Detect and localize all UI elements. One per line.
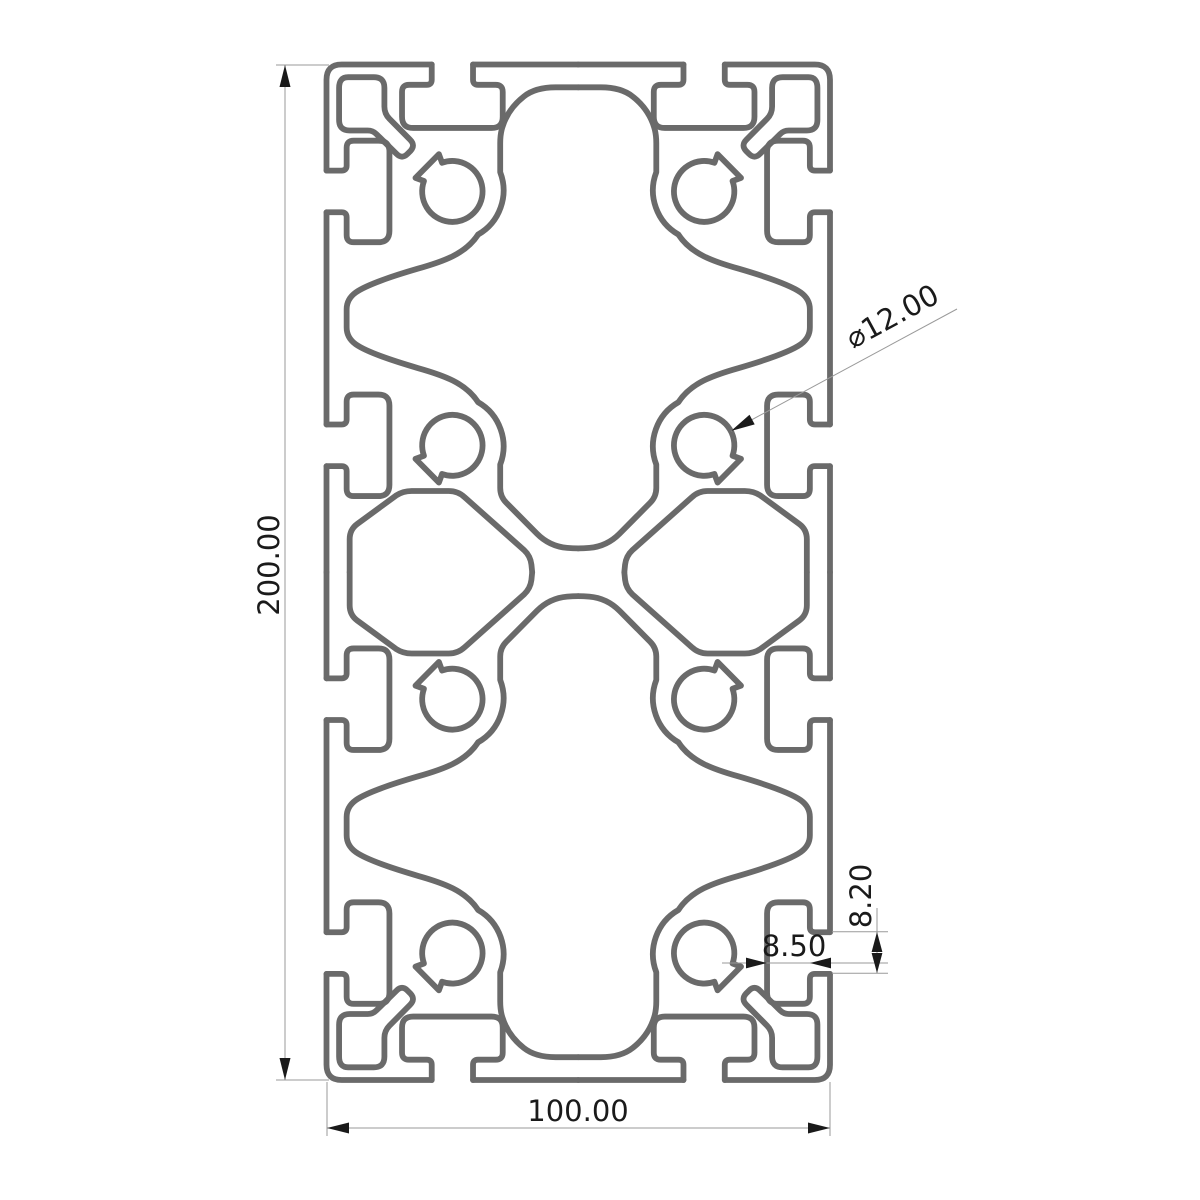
width-dimension-label: 100.00 xyxy=(527,1094,628,1128)
dimension-slot-depth: 8.50 xyxy=(722,929,888,968)
leader-arrowhead-icon xyxy=(731,415,755,431)
arrowhead-up-icon xyxy=(872,932,883,952)
dimension-slot-opening: 8.20 xyxy=(832,864,888,974)
technical-drawing: 200.00 100.00 ⌀12.00 8.50 8.20 xyxy=(0,0,1200,1200)
dimension-height: 200.00 xyxy=(252,65,329,1080)
arrowhead-left-icon xyxy=(327,1123,349,1134)
arrowhead-right-icon xyxy=(808,1123,830,1134)
arrowhead-down-icon xyxy=(280,1058,291,1080)
height-dimension-label: 200.00 xyxy=(252,514,286,615)
slot-depth-label: 8.50 xyxy=(762,929,827,963)
slot-opening-label: 8.20 xyxy=(844,864,878,929)
profile-cross-section xyxy=(327,65,831,1081)
dimension-width: 100.00 xyxy=(327,1082,830,1136)
arrowhead-up-icon xyxy=(280,65,291,87)
drawing-canvas: 200.00 100.00 ⌀12.00 8.50 8.20 xyxy=(0,0,1200,1200)
